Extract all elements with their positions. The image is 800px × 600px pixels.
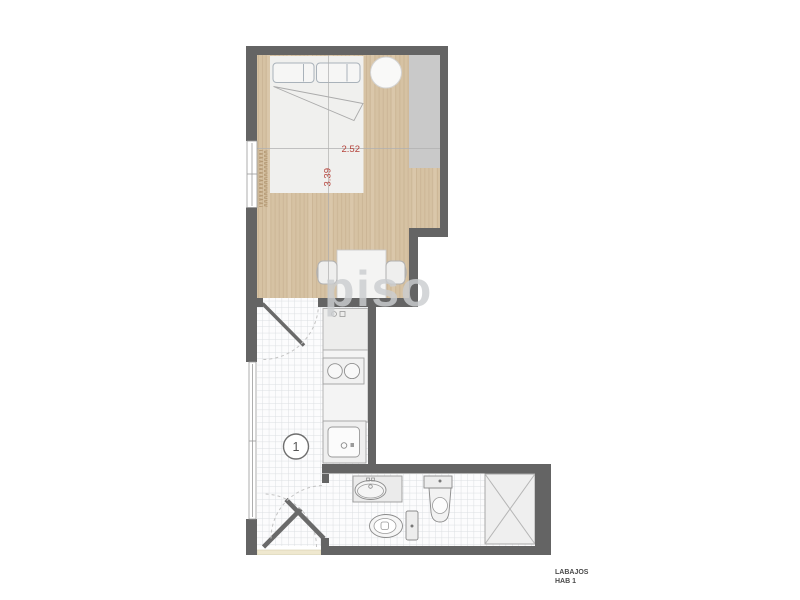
svg-text:LABAJOS: LABAJOS bbox=[555, 569, 589, 576]
svg-text:2.52: 2.52 bbox=[342, 144, 361, 155]
svg-text:1: 1 bbox=[293, 440, 300, 454]
svg-text:piso: piso bbox=[324, 261, 433, 317]
svg-text:3.39: 3.39 bbox=[323, 168, 334, 187]
svg-text:HAB 1: HAB 1 bbox=[555, 578, 576, 585]
